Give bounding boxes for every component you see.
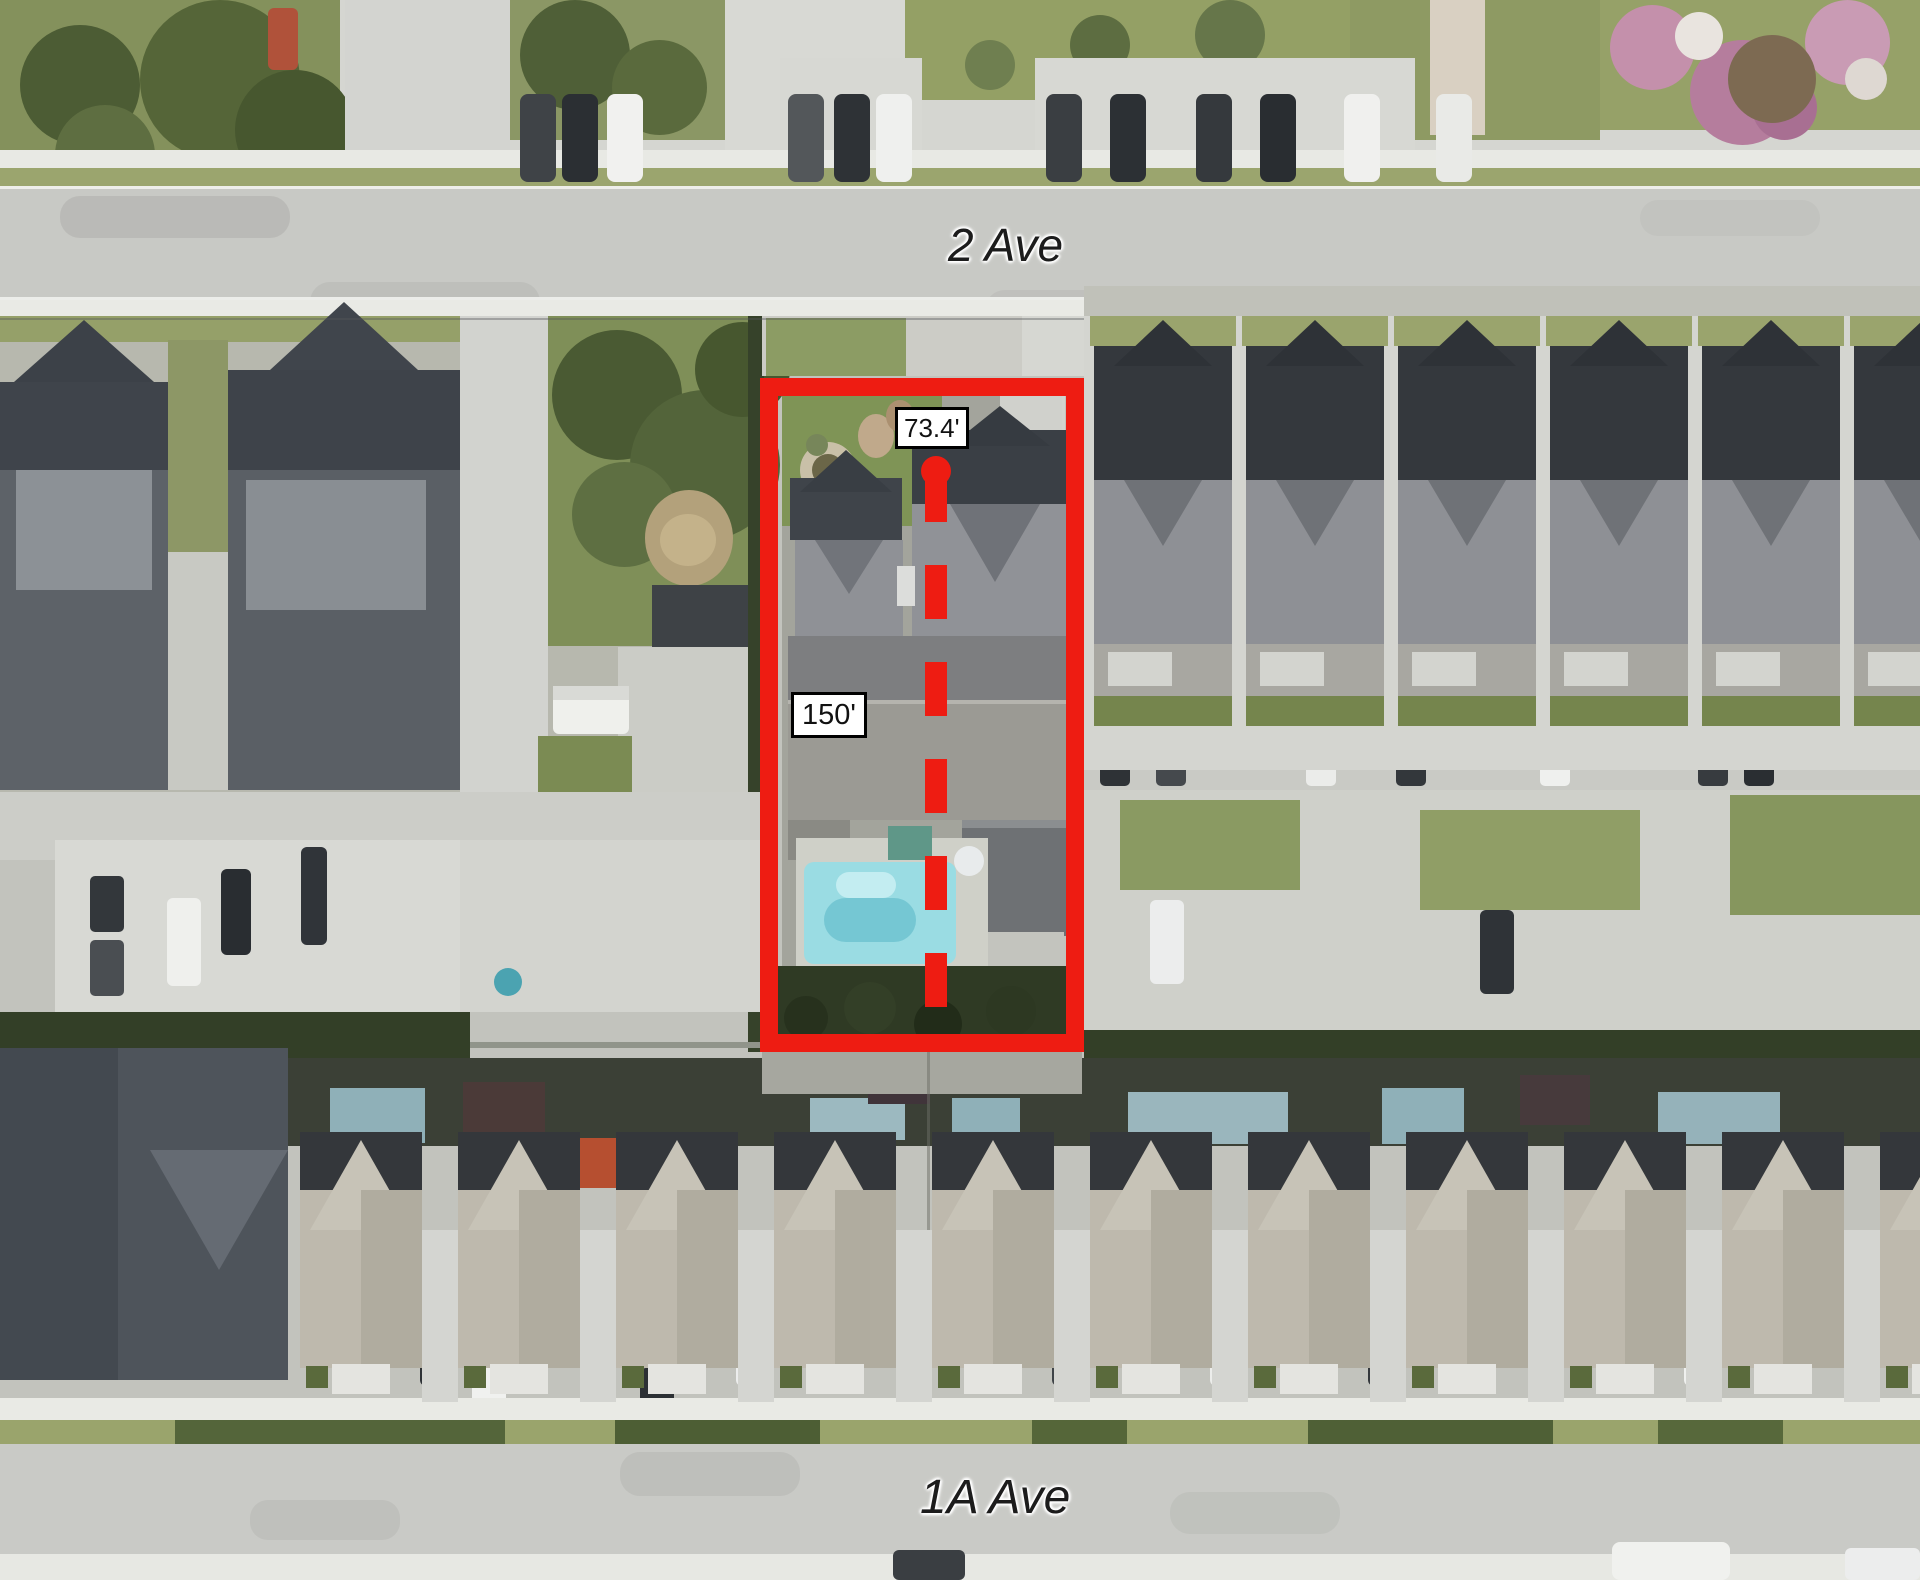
- tree-canopy: [965, 40, 1015, 90]
- backyard-lawn: [1550, 696, 1688, 726]
- backyard-lawn: [1246, 696, 1384, 726]
- parked-car: [1150, 900, 1184, 984]
- roof-shade: [1625, 1190, 1686, 1368]
- sidewalk: [0, 1398, 1920, 1420]
- aerial-texture: [246, 480, 426, 610]
- street-name-1a-ave: 1A Ave: [920, 1470, 1070, 1525]
- aerial-texture: [766, 318, 906, 376]
- sidewalk: [0, 150, 1920, 168]
- moving-car-blur: [60, 196, 290, 238]
- shrub: [938, 1366, 960, 1388]
- shrub: [1096, 1366, 1118, 1388]
- hedge-row: [1032, 1420, 1127, 1444]
- front-porch: [1280, 1364, 1338, 1394]
- driveway: [1212, 1230, 1248, 1402]
- driveway: [1528, 1230, 1564, 1402]
- lot-depth-label: 150': [791, 692, 867, 738]
- parked-car: [1612, 1542, 1730, 1580]
- roof-north-slope: [1880, 1132, 1920, 1190]
- hedge-row: [615, 1420, 820, 1444]
- parked-car: [1110, 94, 1146, 182]
- shrub: [1570, 1366, 1592, 1388]
- aerial-texture: [168, 552, 228, 790]
- lot-split-dashed-line: [925, 468, 947, 1038]
- hedge-row: [1308, 1420, 1553, 1444]
- parked-car: [221, 869, 251, 955]
- parked-car: [876, 94, 912, 182]
- bare-tree: [1728, 35, 1816, 123]
- rear-lane: [762, 1052, 1082, 1094]
- backyard-lawn: [1702, 696, 1840, 726]
- moving-car-blur: [1640, 200, 1820, 236]
- parked-car: [301, 847, 327, 945]
- aerial-texture: [0, 1048, 118, 1380]
- front-porch: [1912, 1364, 1920, 1394]
- shrub: [1886, 1366, 1908, 1388]
- aerial-texture: [1845, 58, 1887, 100]
- front-porch: [806, 1364, 864, 1394]
- driveway: [1686, 1230, 1722, 1402]
- moving-car-blur: [1170, 1492, 1340, 1534]
- front-porch: [1122, 1364, 1180, 1394]
- driveway: [1054, 1230, 1090, 1402]
- parked-car: [90, 940, 124, 996]
- roof-shade: [361, 1190, 422, 1368]
- front-porch: [332, 1364, 390, 1394]
- lot-width-label: 73.4': [895, 407, 969, 449]
- front-porch: [490, 1364, 548, 1394]
- aerial-texture: [1675, 12, 1723, 60]
- roof-shade: [1151, 1190, 1212, 1368]
- shrub: [1412, 1366, 1434, 1388]
- roof-shade: [835, 1190, 896, 1368]
- neighbor-house-roof: [652, 585, 762, 647]
- patio: [1108, 652, 1172, 686]
- parked-car: [893, 1550, 965, 1580]
- parked-car: [1436, 94, 1472, 182]
- moving-car-blur: [250, 1500, 400, 1540]
- front-porch: [1596, 1364, 1654, 1394]
- shrub: [780, 1366, 802, 1388]
- aerial-texture: [168, 340, 228, 552]
- parked-car: [1260, 94, 1296, 182]
- parked-car: [520, 94, 556, 182]
- backyard-lawn: [1398, 696, 1536, 726]
- backyard-lawn: [1094, 696, 1232, 726]
- driveway: [1844, 1230, 1880, 1402]
- parked-car: [90, 876, 124, 932]
- aerial-texture: [228, 370, 460, 470]
- moving-car-blur: [620, 1452, 800, 1496]
- patio: [1868, 652, 1920, 686]
- parked-car: [167, 898, 201, 986]
- patio: [1412, 652, 1476, 686]
- front-porch: [1438, 1364, 1496, 1394]
- house-roof: [1702, 346, 1840, 480]
- house-roof: [1398, 346, 1536, 480]
- parked-car: [834, 94, 870, 182]
- roof-shade: [677, 1190, 738, 1368]
- house-roof: [1854, 346, 1920, 480]
- shared-driveway: [460, 316, 548, 860]
- boulevard-grass: [0, 168, 1920, 188]
- driveway: [1370, 1230, 1406, 1402]
- street-name-2-ave: 2 Ave: [948, 218, 1063, 272]
- parked-car: [268, 8, 298, 70]
- house-roof: [1246, 346, 1384, 480]
- shrub: [622, 1366, 644, 1388]
- aerial-texture: [1420, 810, 1640, 910]
- front-porch: [648, 1364, 706, 1394]
- shrub: [306, 1366, 328, 1388]
- aerial-texture: [1730, 795, 1920, 915]
- aerial-texture: [1120, 800, 1300, 890]
- parked-car: [1344, 94, 1380, 182]
- parked-car: [1046, 94, 1082, 182]
- front-porch: [964, 1364, 1022, 1394]
- house-roof: [1550, 346, 1688, 480]
- shrub: [464, 1366, 486, 1388]
- aerial-texture: [660, 514, 716, 566]
- front-porch: [1754, 1364, 1812, 1394]
- parked-car: [788, 94, 824, 182]
- shed-roof: [1520, 1075, 1590, 1125]
- patio: [1716, 652, 1780, 686]
- roof-shade: [1783, 1190, 1844, 1368]
- aerial-texture: [0, 382, 168, 470]
- aerial-texture: [553, 686, 629, 700]
- shrub: [1254, 1366, 1276, 1388]
- parked-car: [562, 94, 598, 182]
- hedge-row: [1658, 1420, 1783, 1444]
- patio: [1564, 652, 1628, 686]
- parked-car: [607, 94, 643, 182]
- hedge-row: [175, 1420, 505, 1444]
- backyard-lawn: [1854, 696, 1920, 726]
- roof-shade: [993, 1190, 1054, 1368]
- driveway: [580, 1230, 616, 1402]
- roof-shade: [519, 1190, 580, 1368]
- aerial-texture: [16, 470, 152, 590]
- roof-shade: [1467, 1190, 1528, 1368]
- parked-car: [1845, 1548, 1920, 1580]
- driveway: [738, 1230, 774, 1402]
- shrub: [1728, 1366, 1750, 1388]
- driveway: [896, 1230, 932, 1402]
- aerial-photo: 73.4' 150' 2 Ave 1A Ave: [0, 0, 1920, 1580]
- pool-toy: [494, 968, 522, 996]
- driveway: [422, 1230, 458, 1402]
- house-roof: [1094, 346, 1232, 480]
- parked-car: [1480, 910, 1514, 994]
- patio: [1260, 652, 1324, 686]
- roof-shade: [1309, 1190, 1370, 1368]
- aerial-texture: [0, 186, 1920, 189]
- parked-car: [1196, 94, 1232, 182]
